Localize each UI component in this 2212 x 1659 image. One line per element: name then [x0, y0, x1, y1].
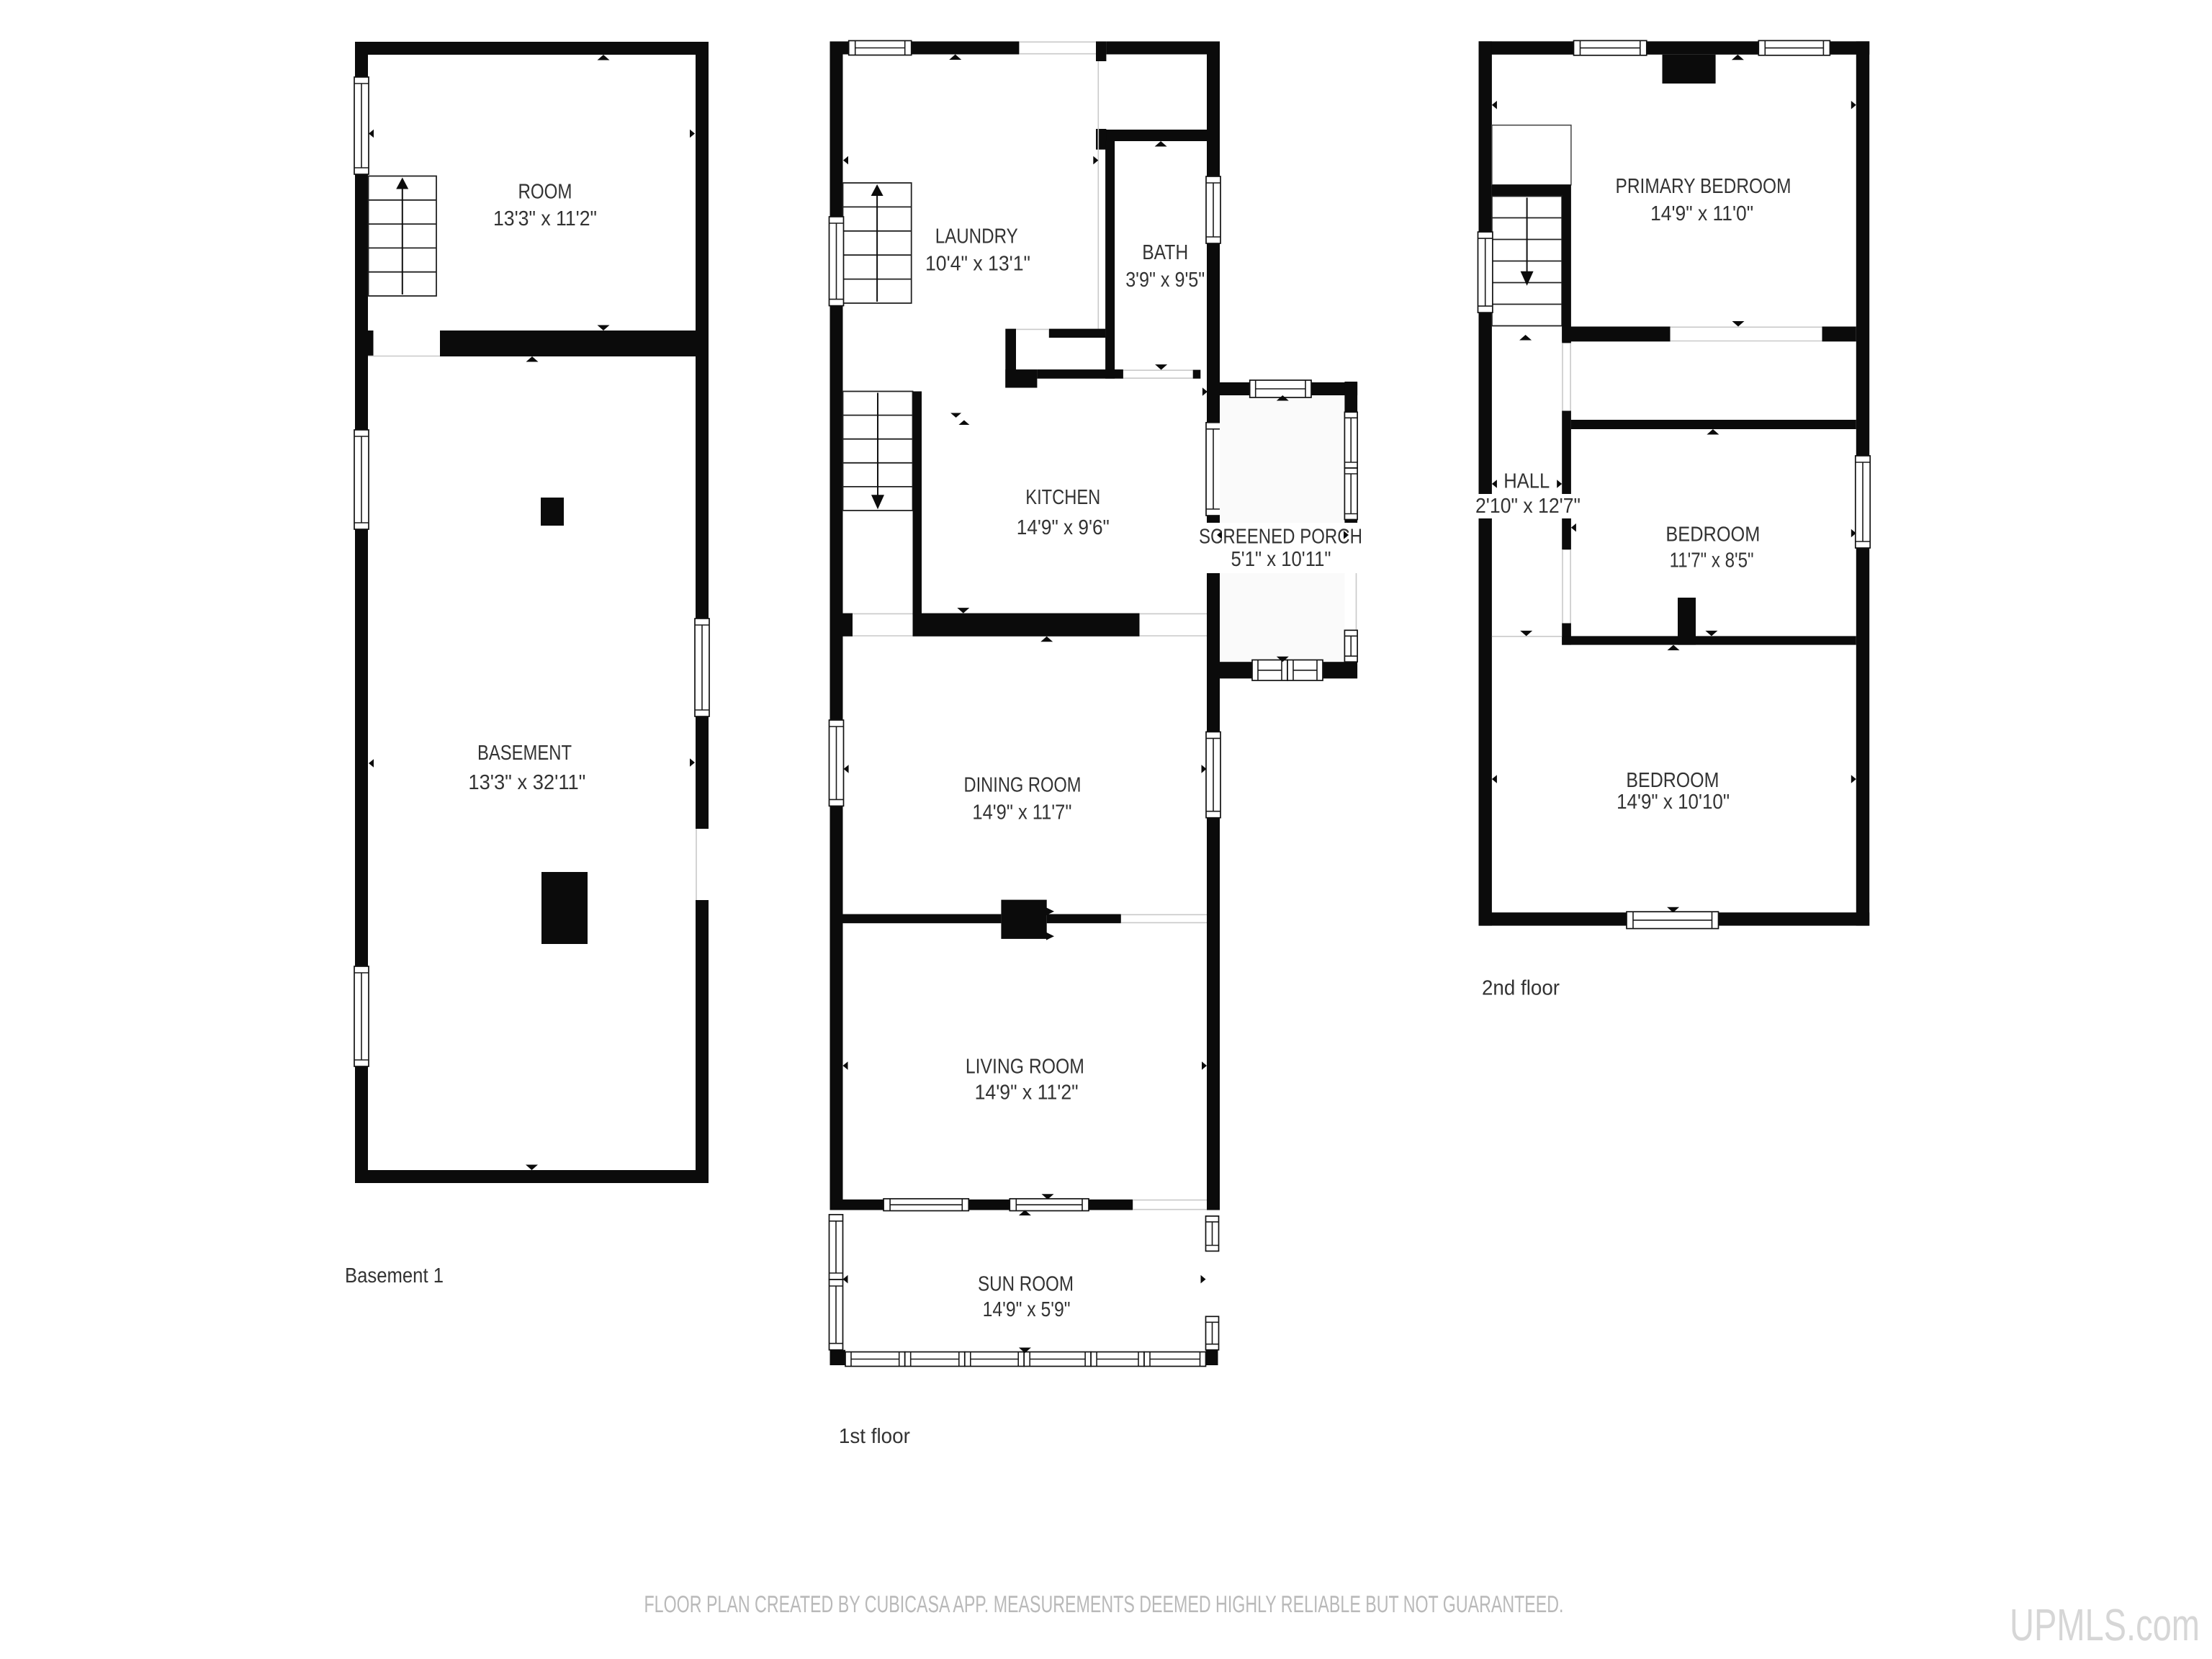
- svg-text:DINING ROOM: DINING ROOM: [964, 774, 1082, 797]
- svg-text:14'9" x 9'6": 14'9" x 9'6": [1017, 516, 1110, 539]
- svg-text:HALL: HALL: [1503, 469, 1550, 493]
- svg-text:FLOOR PLAN CREATED BY CUBICASA: FLOOR PLAN CREATED BY CUBICASA APP. MEAS…: [644, 1591, 1564, 1617]
- svg-text:14'9" x 11'2": 14'9" x 11'2": [975, 1081, 1079, 1104]
- svg-text:SCREENED PORCH: SCREENED PORCH: [1199, 526, 1362, 549]
- svg-text:3'9" x 9'5": 3'9" x 9'5": [1125, 269, 1205, 292]
- svg-text:14'9" x 11'7": 14'9" x 11'7": [972, 801, 1071, 824]
- svg-text:PRIMARY BEDROOM: PRIMARY BEDROOM: [1616, 175, 1791, 198]
- svg-text:BEDROOM: BEDROOM: [1626, 769, 1719, 792]
- svg-text:5'1" x 10'11": 5'1" x 10'11": [1231, 548, 1331, 571]
- svg-text:14'9" x 10'10": 14'9" x 10'10": [1617, 791, 1730, 814]
- svg-text:2nd floor: 2nd floor: [1482, 977, 1560, 1000]
- svg-text:BEDROOM: BEDROOM: [1665, 523, 1760, 546]
- svg-text:11'7" x 8'5": 11'7" x 8'5": [1670, 549, 1754, 572]
- svg-text:2'10" x 12'7": 2'10" x 12'7": [1475, 495, 1581, 518]
- svg-text:14'9" x 11'0": 14'9" x 11'0": [1650, 202, 1753, 225]
- svg-text:14'9" x 5'9": 14'9" x 5'9": [983, 1298, 1071, 1321]
- svg-text:LIVING ROOM: LIVING ROOM: [966, 1056, 1084, 1079]
- svg-text:UPMLS.com: UPMLS.com: [2010, 1600, 2200, 1650]
- svg-text:ROOM: ROOM: [518, 181, 572, 204]
- svg-text:LAUNDRY: LAUNDRY: [935, 225, 1018, 248]
- svg-text:13'3" x 32'11": 13'3" x 32'11": [468, 771, 585, 794]
- svg-text:Basement 1: Basement 1: [345, 1264, 444, 1287]
- svg-text:1st floor: 1st floor: [839, 1425, 910, 1448]
- svg-text:BASEMENT: BASEMENT: [477, 742, 572, 765]
- svg-text:KITCHEN: KITCHEN: [1025, 486, 1100, 509]
- svg-text:10'4" x 13'1": 10'4" x 13'1": [925, 253, 1030, 276]
- svg-text:BATH: BATH: [1142, 241, 1188, 264]
- svg-text:SUN ROOM: SUN ROOM: [978, 1272, 1074, 1295]
- svg-text:13'3" x 11'2": 13'3" x 11'2": [493, 207, 597, 230]
